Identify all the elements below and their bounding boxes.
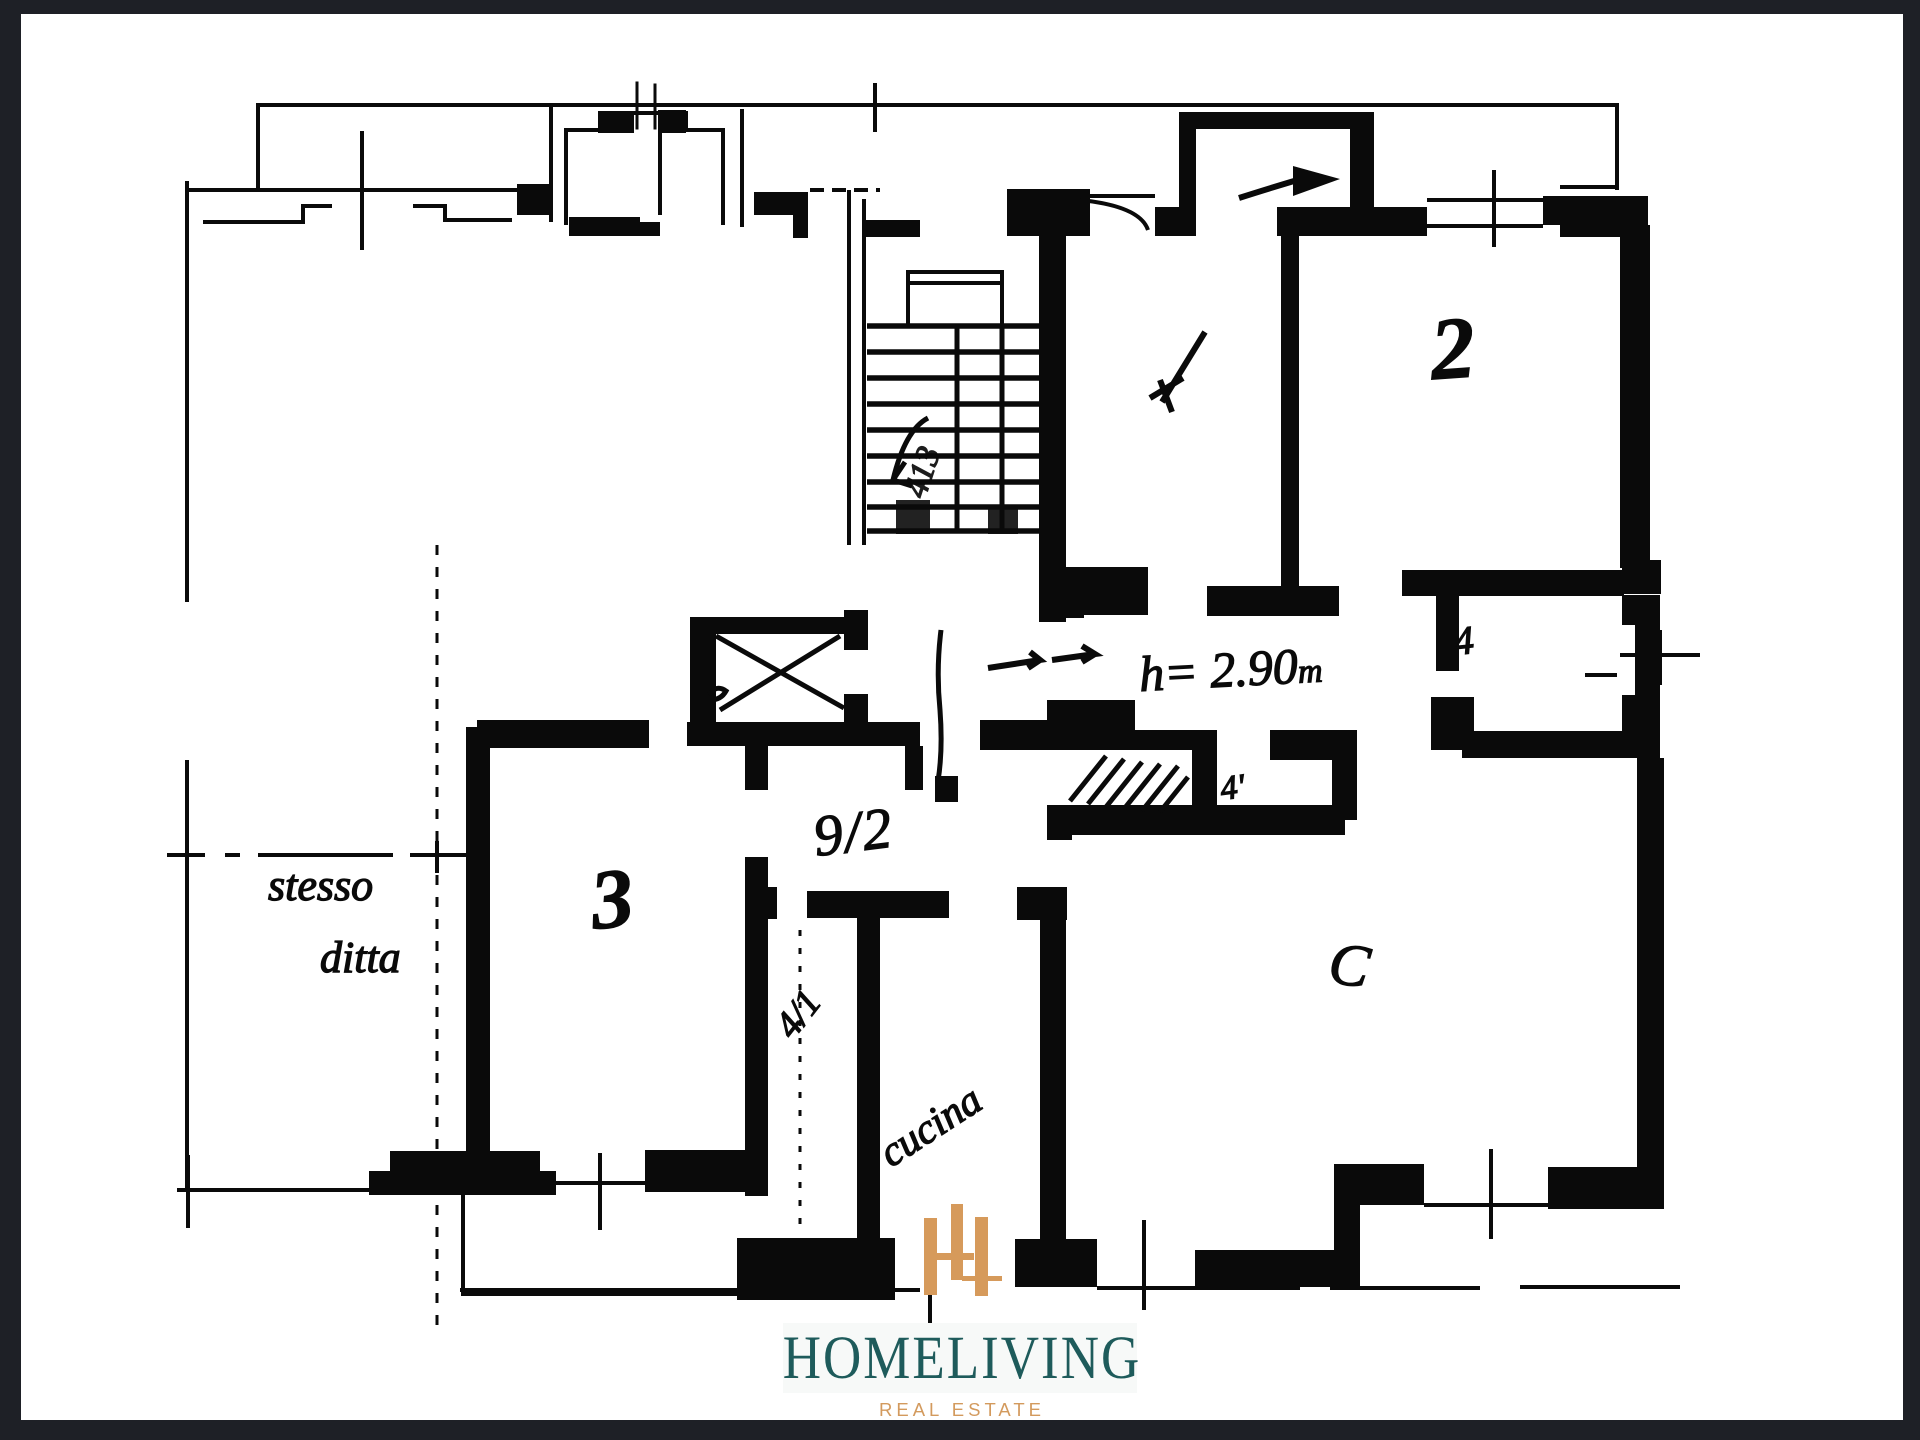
svg-text:2: 2 [1425, 299, 1478, 399]
svg-text:ditta: ditta [320, 933, 401, 982]
svg-text:stesso: stesso [268, 861, 373, 910]
svg-text:h= 2.90m: h= 2.90m [1138, 636, 1324, 702]
svg-text:9/2: 9/2 [810, 795, 897, 869]
svg-text:HOMELIVING: HOMELIVING [783, 1325, 1142, 1392]
svg-text:REAL ESTATE: REAL ESTATE [879, 1399, 1045, 1420]
